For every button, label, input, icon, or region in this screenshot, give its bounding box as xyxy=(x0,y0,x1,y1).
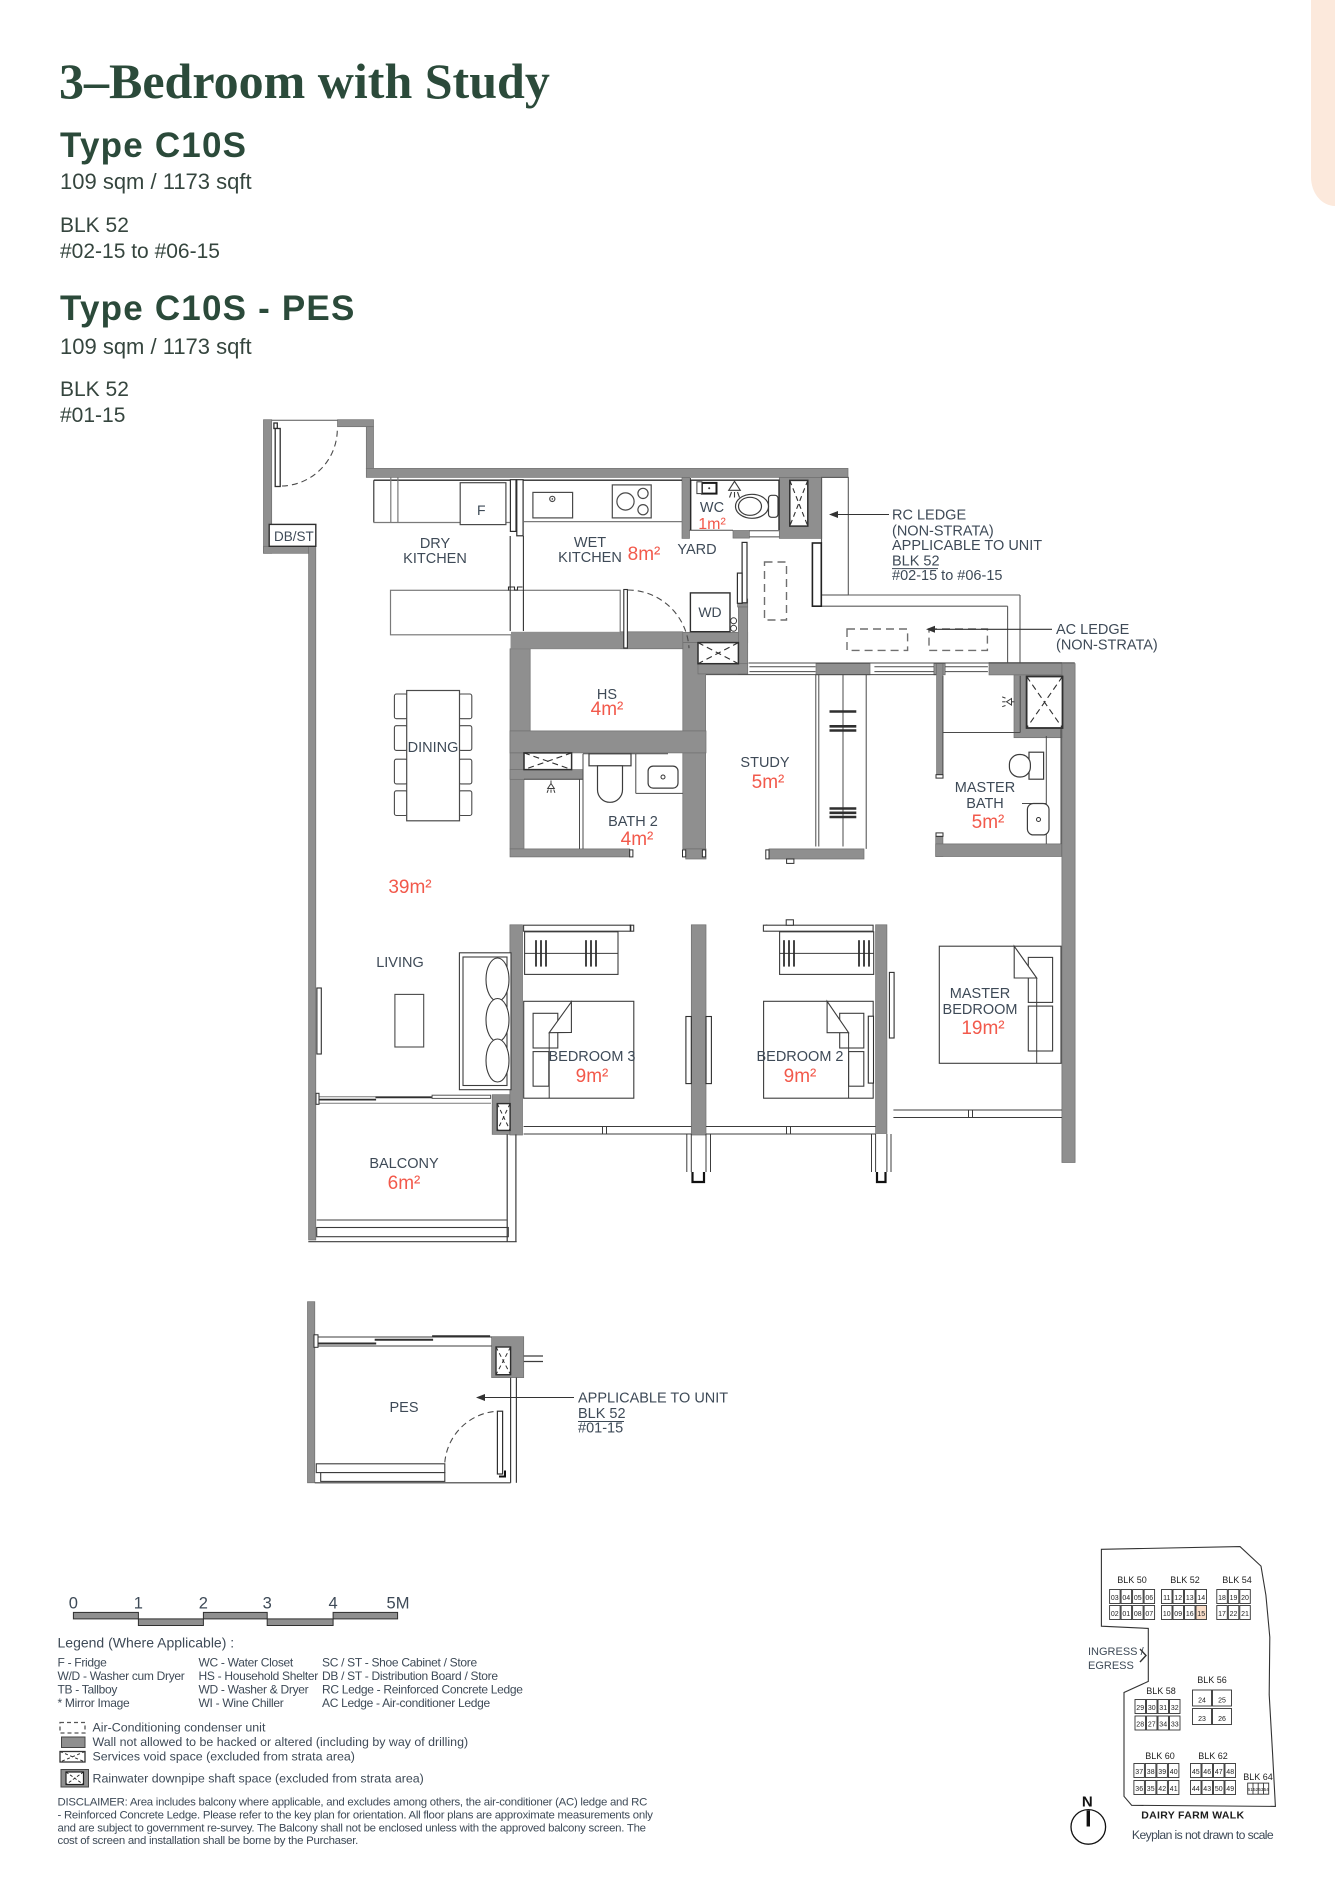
svg-text:33: 33 xyxy=(1171,1722,1179,1729)
svg-text:17: 17 xyxy=(1218,1611,1226,1618)
svg-text:39m²: 39m² xyxy=(388,877,431,898)
svg-text:21: 21 xyxy=(1241,1611,1249,1618)
svg-text:28: 28 xyxy=(1136,1722,1144,1729)
svg-text:9m²: 9m² xyxy=(784,1066,817,1087)
svg-text:BEDROOM 2: BEDROOM 2 xyxy=(756,1049,843,1065)
svg-text:30: 30 xyxy=(1148,1705,1156,1712)
svg-text:KITCHEN: KITCHEN xyxy=(403,551,467,567)
svg-text:2: 2 xyxy=(199,1595,208,1613)
svg-text:RC Ledge - Reinforced Concrete: RC Ledge - Reinforced Concrete Ledge xyxy=(322,1683,523,1697)
svg-text:APPLICABLE TO UNIT: APPLICABLE TO UNIT xyxy=(578,1391,728,1407)
svg-text:Rainwater downpipe shaft space: Rainwater downpipe shaft space (excluded… xyxy=(93,1772,424,1786)
svg-text:RC LEDGE: RC LEDGE xyxy=(892,508,966,524)
svg-text:W/D - Washer cum Dryer: W/D - Washer cum Dryer xyxy=(58,1669,185,1683)
svg-text:F - Fridge: F - Fridge xyxy=(58,1656,108,1670)
svg-text:44: 44 xyxy=(1192,1786,1200,1793)
svg-text:26: 26 xyxy=(1218,1716,1226,1723)
svg-text:49: 49 xyxy=(1226,1786,1234,1793)
svg-text:BALCONY: BALCONY xyxy=(369,1156,439,1172)
svg-text:43: 43 xyxy=(1203,1786,1211,1793)
svg-text:AC LEDGE: AC LEDGE xyxy=(1056,622,1130,638)
svg-text:6m²: 6m² xyxy=(388,1173,421,1194)
svg-text:F: F xyxy=(477,502,486,518)
svg-text:40: 40 xyxy=(1170,1769,1178,1776)
svg-text:16: 16 xyxy=(1186,1611,1194,1618)
svg-text:24: 24 xyxy=(1198,1698,1206,1705)
svg-text:BLK 58: BLK 58 xyxy=(1146,1686,1176,1696)
svg-text:BLK 62: BLK 62 xyxy=(1198,1751,1228,1761)
svg-text:Wall not allowed to be hacked: Wall not allowed to be hacked or altered… xyxy=(93,1735,469,1749)
svg-text:BATH: BATH xyxy=(966,796,1004,812)
svg-text:50: 50 xyxy=(1215,1786,1223,1793)
svg-text:11: 11 xyxy=(1163,1595,1170,1602)
svg-text:15: 15 xyxy=(1197,1611,1205,1618)
svg-text:05: 05 xyxy=(1134,1595,1142,1602)
svg-text:0: 0 xyxy=(69,1595,78,1613)
svg-text:MASTER: MASTER xyxy=(950,986,1010,1002)
svg-text:AC Ledge - Air-conditioner Led: AC Ledge - Air-conditioner Ledge xyxy=(322,1696,490,1710)
svg-text:WET: WET xyxy=(574,535,606,551)
svg-text:TB - Tallboy: TB - Tallboy xyxy=(58,1683,118,1697)
svg-text:3: 3 xyxy=(263,1595,272,1613)
svg-text:5m²: 5m² xyxy=(972,812,1005,833)
svg-text:38: 38 xyxy=(1147,1769,1155,1776)
svg-text:09: 09 xyxy=(1174,1611,1182,1618)
svg-text:12: 12 xyxy=(1174,1595,1182,1602)
svg-text:BLK 54: BLK 54 xyxy=(1222,1575,1252,1585)
svg-text:* Mirror Image: * Mirror Image xyxy=(58,1696,130,1710)
svg-text:1: 1 xyxy=(134,1595,143,1613)
svg-text:BATH 2: BATH 2 xyxy=(608,814,658,830)
svg-text:(NON-STRATA): (NON-STRATA) xyxy=(1056,638,1158,654)
svg-text:DRY: DRY xyxy=(420,536,451,552)
svg-text:41: 41 xyxy=(1170,1786,1178,1793)
svg-text:MASTER: MASTER xyxy=(955,780,1015,796)
svg-text:42: 42 xyxy=(1158,1786,1166,1793)
svg-text:39: 39 xyxy=(1158,1769,1166,1776)
svg-text:1m²: 1m² xyxy=(698,516,726,533)
svg-text:19: 19 xyxy=(1230,1595,1238,1602)
svg-text:8m²: 8m² xyxy=(628,544,661,565)
svg-text:23: 23 xyxy=(1198,1716,1206,1723)
svg-text:WI - Wine Chiller: WI - Wine Chiller xyxy=(199,1696,284,1710)
svg-text:01: 01 xyxy=(1122,1611,1130,1618)
svg-text:31: 31 xyxy=(1159,1705,1167,1712)
svg-text:SC / ST - Shoe Cabinet / Store: SC / ST - Shoe Cabinet / Store xyxy=(322,1656,477,1670)
svg-text:48: 48 xyxy=(1226,1769,1234,1776)
svg-text:DAIRY FARM WALK: DAIRY FARM WALK xyxy=(1141,1810,1244,1822)
svg-text:- Reinforced Concrete Ledge. P: - Reinforced Concrete Ledge. Please refe… xyxy=(58,1809,654,1821)
svg-text:5M: 5M xyxy=(387,1595,410,1613)
svg-text:35: 35 xyxy=(1147,1786,1155,1793)
svg-text:19m²: 19m² xyxy=(961,1018,1004,1039)
svg-text:32: 32 xyxy=(1171,1705,1179,1712)
svg-text:cost of screen and installatio: cost of screen and installation shall be… xyxy=(58,1835,359,1847)
svg-text:29: 29 xyxy=(1136,1705,1144,1712)
svg-text:13: 13 xyxy=(1186,1595,1194,1602)
svg-text:4: 4 xyxy=(329,1595,338,1613)
svg-text:Air-Conditioning condenser uni: Air-Conditioning condenser unit xyxy=(93,1721,266,1735)
svg-text:20: 20 xyxy=(1241,1595,1249,1602)
svg-text:INGRESS /: INGRESS / xyxy=(1088,1646,1145,1658)
svg-text:07: 07 xyxy=(1145,1611,1153,1618)
svg-text:34: 34 xyxy=(1159,1722,1167,1729)
svg-text:BEDROOM 3: BEDROOM 3 xyxy=(548,1049,635,1065)
svg-text:WC: WC xyxy=(700,500,724,516)
svg-text:06: 06 xyxy=(1145,1595,1153,1602)
svg-text:4m²: 4m² xyxy=(621,829,654,850)
svg-text:9m²: 9m² xyxy=(576,1066,609,1087)
svg-text:WD - Washer & Dryer: WD - Washer & Dryer xyxy=(199,1683,309,1697)
svg-text:#02-15 to #06-15: #02-15 to #06-15 xyxy=(892,568,1002,584)
svg-text:47: 47 xyxy=(1215,1769,1223,1776)
svg-text:BLK 64: BLK 64 xyxy=(1243,1772,1273,1782)
svg-text:25: 25 xyxy=(1218,1698,1226,1705)
svg-text:DINING: DINING xyxy=(408,740,459,756)
svg-text:54: 54 xyxy=(1264,1787,1270,1792)
svg-text:10: 10 xyxy=(1163,1611,1171,1618)
svg-text:03: 03 xyxy=(1111,1595,1119,1602)
svg-text:BEDROOM: BEDROOM xyxy=(943,1002,1018,1018)
svg-text:PES: PES xyxy=(389,1400,418,1416)
svg-text:DISCLAIMER: Area includes balc: DISCLAIMER: Area includes balcony where … xyxy=(58,1797,648,1809)
svg-text:45: 45 xyxy=(1192,1769,1200,1776)
svg-text:BLK 60: BLK 60 xyxy=(1145,1751,1175,1761)
svg-text:BLK 52: BLK 52 xyxy=(1170,1575,1200,1585)
svg-text:APPLICABLE TO UNIT: APPLICABLE TO UNIT xyxy=(892,538,1042,554)
svg-text:KITCHEN: KITCHEN xyxy=(558,550,622,566)
svg-text:BLK 50: BLK 50 xyxy=(1117,1575,1147,1585)
svg-text:DB/ST: DB/ST xyxy=(274,529,314,544)
svg-text:4m²: 4m² xyxy=(591,699,624,720)
svg-text:WC - Water Closet: WC - Water Closet xyxy=(199,1656,294,1670)
svg-text:18: 18 xyxy=(1218,1595,1226,1602)
svg-text:Keyplan is not drawn to scale: Keyplan is not drawn to scale xyxy=(1132,1828,1274,1842)
svg-text:5m²: 5m² xyxy=(752,772,785,793)
svg-text:LIVING: LIVING xyxy=(376,955,424,971)
svg-text:04: 04 xyxy=(1122,1595,1130,1602)
svg-text:HS - Household Shelter: HS - Household Shelter xyxy=(199,1669,319,1683)
svg-text:14: 14 xyxy=(1197,1595,1205,1602)
svg-text:N: N xyxy=(1082,1794,1093,1811)
svg-text:08: 08 xyxy=(1134,1611,1142,1618)
svg-text:02: 02 xyxy=(1111,1611,1119,1618)
svg-text:EGRESS: EGRESS xyxy=(1088,1660,1134,1672)
svg-text:46: 46 xyxy=(1203,1769,1211,1776)
svg-text:22: 22 xyxy=(1230,1611,1238,1618)
svg-text:and are subject to government: and are subject to government re-survey.… xyxy=(58,1822,646,1834)
svg-text:27: 27 xyxy=(1148,1722,1156,1729)
svg-text:#01-15: #01-15 xyxy=(578,1421,623,1437)
svg-text:WD: WD xyxy=(698,604,721,620)
svg-text:STUDY: STUDY xyxy=(740,755,789,771)
svg-text:37: 37 xyxy=(1135,1769,1143,1776)
svg-text:BLK 56: BLK 56 xyxy=(1197,1675,1227,1685)
svg-text:Services void space (excluded: Services void space (excluded from strat… xyxy=(93,1750,355,1764)
svg-text:DB / ST - Distribution Board /: DB / ST - Distribution Board / Store xyxy=(322,1669,498,1683)
svg-text:Legend (Where Applicable) :: Legend (Where Applicable) : xyxy=(58,1635,235,1651)
svg-text:36: 36 xyxy=(1135,1786,1143,1793)
svg-text:YARD: YARD xyxy=(677,542,716,558)
